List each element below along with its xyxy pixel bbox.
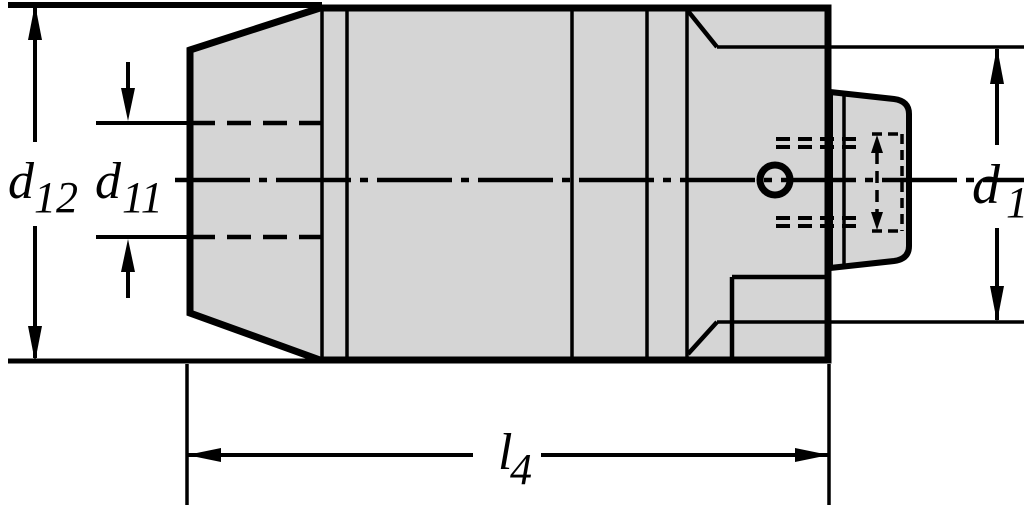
d1-arrow-up-icon [990, 47, 1004, 84]
technical-drawing-canvas: d 12 d 11 l 4 d 1 [0, 0, 1024, 505]
d1-arrow-down-icon [990, 286, 1004, 322]
d12-label-subscript: 12 [34, 173, 78, 222]
d12-arrow-down-icon [28, 326, 42, 362]
d11-label-subscript: 11 [122, 173, 163, 222]
d12-label: d [8, 153, 35, 210]
d1-label-subscript: 1 [1006, 178, 1024, 227]
d11-arrow-up-icon [121, 239, 135, 272]
d12-arrow-up-icon [28, 4, 42, 40]
d11-label: d [95, 153, 122, 210]
l4-arrow-left-icon [187, 448, 221, 462]
l4-arrow-right-icon [795, 448, 829, 462]
tool-holder-drawing: d 12 d 11 l 4 d 1 [0, 0, 1024, 505]
l4-label-subscript: 4 [510, 445, 532, 494]
d11-arrow-down-icon [121, 88, 135, 121]
d1-label: d [972, 154, 1001, 216]
